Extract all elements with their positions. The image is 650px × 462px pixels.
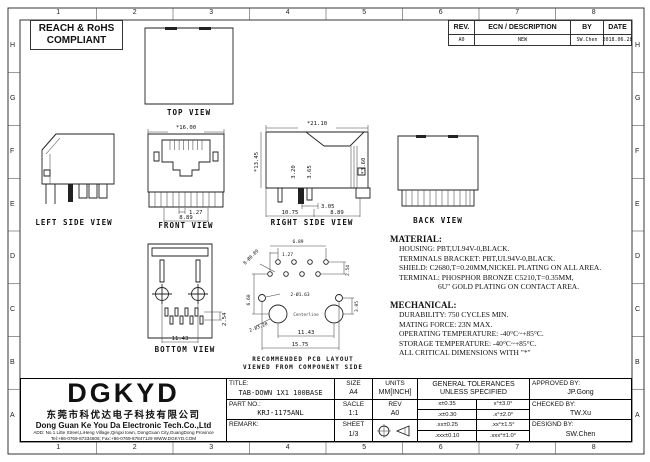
designed-value: SW.Chen <box>530 428 631 441</box>
remark-label: REMARK: <box>227 420 334 428</box>
left-side-view-label: LEFT SIDE VIEW <box>26 218 122 227</box>
rev-cell-rev: A0 <box>449 35 475 45</box>
material-title: MATERIAL: <box>390 234 634 244</box>
bottom-view-label: BOTTOM VIEW <box>140 345 230 354</box>
revision-table: REV. ECN / DESCRIPTION BY DATE A0 NEW SW… <box>448 20 632 46</box>
zone-label: B <box>10 359 15 366</box>
sheet-value: 1/3 <box>335 428 372 441</box>
pcb-dim-pitch: 1.27 <box>282 252 293 258</box>
front-view-label: FRONT VIEW <box>136 221 236 230</box>
approved-label: APPROVED BY: <box>530 379 631 387</box>
zone-label: 1 <box>56 444 60 451</box>
pcb-dim-row: 2.54 <box>345 265 351 276</box>
zone-label: D <box>635 253 640 260</box>
zone-label: 6 <box>439 444 443 451</box>
zone-label: A <box>635 412 640 419</box>
tolerances-header-line1: GENERAL TOLERANCES <box>432 381 514 389</box>
material-line: SHIELD: C2680,T=0.20MM,NICKEL PLATING ON… <box>399 263 634 273</box>
tolerance-cell: x±0.35 <box>418 400 477 410</box>
material-line: 6U" GOLD PLATING ON CONTACT AREA. <box>438 282 634 292</box>
tolerances-header-line2: UNLESS SPECIFIED <box>440 389 507 397</box>
remark-cell: REMARK: <box>227 420 335 441</box>
material-line: TERMINALS BRACKET: PBT,UL94V-0,BLACK. <box>399 254 634 264</box>
front-dim-width: *16.00 <box>176 125 196 131</box>
zone-label: H <box>635 42 640 49</box>
top-view-drawing <box>143 26 235 106</box>
zone-label: F <box>635 148 639 155</box>
pcb-centerline-label: Centerline <box>293 312 319 317</box>
zone-label: E <box>635 201 640 208</box>
right-dim-e: 10.75 <box>282 210 299 216</box>
zone-label: 2 <box>133 444 137 451</box>
tolerance-cell: .x°±2.0° <box>477 410 530 420</box>
bottom-dim-a: 11.43 <box>172 336 189 342</box>
zone-label: 6 <box>439 9 443 16</box>
right-dim-c: *3.60 <box>361 158 367 175</box>
front-view-drawing: *16.00 1.27 8.89 <box>136 120 236 218</box>
company-name-en: Dong Guan Ke You Da Electronic Tech.Co.,… <box>36 421 212 430</box>
top-view-label: TOP VIEW <box>143 108 235 117</box>
pcb-dim-posts: 2-Ø3.20 <box>248 320 269 334</box>
zone-label: H <box>10 42 15 49</box>
mechanical-line: DURABILITY: 750 CYCLES MIN. <box>399 310 634 320</box>
rev-cell-ecn: NEW <box>475 35 571 45</box>
zone-label: 8 <box>592 444 596 451</box>
zone-label: B <box>635 359 640 366</box>
right-dim-f: 8.89 <box>330 210 343 216</box>
company-logo: DGKYD <box>67 380 180 407</box>
pcb-dim-top: 6.89 <box>292 239 303 245</box>
mechanical-line: MATING FORCE: 23N MAX. <box>399 320 634 330</box>
zone-label: 5 <box>362 444 366 451</box>
rev-label: REV <box>373 400 417 408</box>
pcb-dim-right: 3.05 <box>354 301 360 312</box>
pcb-dim-mid-holes: 2-Ø1.63 <box>290 291 310 298</box>
tolerance-cell: .xx±0.25 <box>418 420 477 430</box>
right-dim-width: *21.10 <box>307 121 327 127</box>
back-view-label: BACK VIEW <box>392 216 484 225</box>
tolerance-cell: .xxx°±1.0° <box>477 431 530 441</box>
right-dim-height: *13.45 <box>254 152 260 172</box>
approved-cell: APPROVED BY: JP.Gong <box>530 379 631 400</box>
zone-label: A <box>10 412 15 419</box>
sheet-cell: SHEET 1/3 <box>335 420 373 441</box>
title-block: DGKYD 东莞市科优达电子科技有限公司 Dong Guan Ke You Da… <box>20 378 632 442</box>
mechanical-title: MECHANICAL: <box>390 300 634 310</box>
right-dim-b: 3.65 <box>307 165 313 178</box>
title-value: TAB-DOWN 1X1 100BASE <box>227 387 334 399</box>
rev-header-by: BY <box>571 21 604 35</box>
zone-label: 3 <box>209 444 213 451</box>
part-no-value: KRJ-1175ANL <box>227 408 334 420</box>
compliance-line1: REACH & RoHS <box>39 23 115 36</box>
rev-cell-date: 2018.06.28 <box>604 35 631 45</box>
checked-label: CHECKED BY: <box>530 400 631 408</box>
bottom-view-drawing: 11.43 2.54 <box>140 242 230 348</box>
pcb-dim-left: 6.60 <box>246 294 252 305</box>
units-cell: UNITS MM[INCH] <box>373 379 418 400</box>
tolerance-cell: .xx°±1.5° <box>477 420 530 430</box>
material-section: MATERIAL: HOUSING: PBT,UL94V-0,BLACK. TE… <box>390 234 634 292</box>
material-line: TERMINAL: PHOSPHOR BRONZE C5210,T=0.35MM… <box>399 273 634 283</box>
tolerance-cell: .xxx±0.10 <box>418 431 477 441</box>
designed-label: DESIGND BY: <box>530 420 631 428</box>
third-angle-projection-icon <box>376 423 414 439</box>
pcb-caption-line2: VIEWED FROM COMPONENT SIDE <box>238 364 368 371</box>
pcb-dim-post-span: 11.43 <box>298 330 315 336</box>
scale-label: SACLE <box>335 400 372 408</box>
pcb-caption-line1: RECOMMENDED PCB LAYOUT <box>238 356 368 363</box>
zone-label: 7 <box>515 444 519 451</box>
tolerances-header: GENERAL TOLERANCES UNLESS SPECIFIED <box>418 379 530 400</box>
pcb-dim-holes: 8-Ø0.89 <box>242 247 261 266</box>
mechanical-line: STORAGE TEMPERATURE: -40°C~+85°C. <box>399 339 634 349</box>
right-side-view-drawing: *21.10 *13.45 3.20 3.65 *3.60 3.05 10.75… <box>252 116 372 220</box>
zone-label: E <box>10 201 15 208</box>
zone-label: 3 <box>209 9 213 16</box>
sheet-label: SHEET <box>335 420 372 428</box>
right-side-view-label: RIGHT SIDE VIEW <box>252 218 372 227</box>
rev-cell: REV A0 <box>373 400 418 421</box>
checked-value: TW.Xu <box>530 408 631 420</box>
mechanical-line: ALL CRITICAL DIMENSIONS WITH "*" <box>399 348 634 358</box>
bottom-dim-b: 2.54 <box>222 312 228 326</box>
back-view-drawing <box>392 132 484 214</box>
title-label: TITLE: <box>227 379 334 387</box>
compliance-line2: COMPLIANT <box>47 35 106 48</box>
rev-header-ecn: ECN / DESCRIPTION <box>475 21 571 35</box>
zone-label: 4 <box>286 9 290 16</box>
zone-label: G <box>10 95 15 102</box>
zone-label: 2 <box>133 9 137 16</box>
title-cell: TITLE: TAB-DOWN 1X1 100BASE <box>227 379 335 400</box>
zone-label: 4 <box>286 444 290 451</box>
zone-label: G <box>635 95 640 102</box>
tolerance-cell: x°±3.0° <box>477 400 530 410</box>
zone-label: C <box>635 306 640 313</box>
mechanical-section: MECHANICAL: DURABILITY: 750 CYCLES MIN. … <box>390 300 634 358</box>
scale-value: 1:1 <box>335 408 372 420</box>
material-line: HOUSING: PBT,UL94V-0,BLACK. <box>399 244 634 254</box>
units-label: UNITS <box>373 379 417 387</box>
zone-label: 5 <box>362 9 366 16</box>
drawing-sheet: 1122334455667788HHGGFFEEDDCCBBAA REACH &… <box>0 0 650 462</box>
compliance-badge: REACH & RoHS COMPLIANT <box>30 20 123 50</box>
company-block: DGKYD 东莞市科优达电子科技有限公司 Dong Guan Ke You Da… <box>21 379 227 441</box>
zone-label: 1 <box>56 9 60 16</box>
zone-label: D <box>10 253 15 260</box>
company-name-cn: 东莞市科优达电子科技有限公司 <box>46 407 200 421</box>
part-no-label: PART NO.: <box>227 400 334 408</box>
rev-header-date: DATE <box>604 21 631 35</box>
zone-label: C <box>10 306 15 313</box>
part-no-cell: PART NO.: KRJ-1175ANL <box>227 400 335 421</box>
size-label: SIZE <box>335 379 372 387</box>
company-contact: Tel:+86-0769-87334606; Fax:+86-0769-8784… <box>51 436 196 441</box>
size-cell: SIZE A4 <box>335 379 373 400</box>
pcb-dim-total: 15.75 <box>292 342 309 348</box>
units-value: MM[INCH] <box>373 387 417 399</box>
zone-label: 7 <box>515 9 519 16</box>
approved-value: JP.Gong <box>530 387 631 399</box>
projection-symbol-cell <box>373 420 418 441</box>
left-side-view-drawing <box>26 128 122 212</box>
mechanical-line: OPERATING TEMPERATURE: -40°C~+85°C. <box>399 329 634 339</box>
scale-cell: SACLE 1:1 <box>335 400 373 421</box>
rev-cell-by: SW.Chen <box>571 35 604 45</box>
tolerance-cell: .x±0.30 <box>418 410 477 420</box>
checked-cell: CHECKED BY: TW.Xu <box>530 400 631 421</box>
right-dim-a: 3.20 <box>291 165 297 178</box>
zone-label: F <box>10 148 14 155</box>
rev-header-rev: REV. <box>449 21 475 35</box>
rev-value: A0 <box>373 408 417 420</box>
designed-cell: DESIGND BY: SW.Chen <box>530 420 631 441</box>
zone-label: 8 <box>592 9 596 16</box>
pcb-layout-drawing: 6.89 1.27 2.54 8-Ø0.89 2-Ø1.63 2-Ø3.20 6… <box>238 234 368 356</box>
size-value: A4 <box>335 387 372 399</box>
